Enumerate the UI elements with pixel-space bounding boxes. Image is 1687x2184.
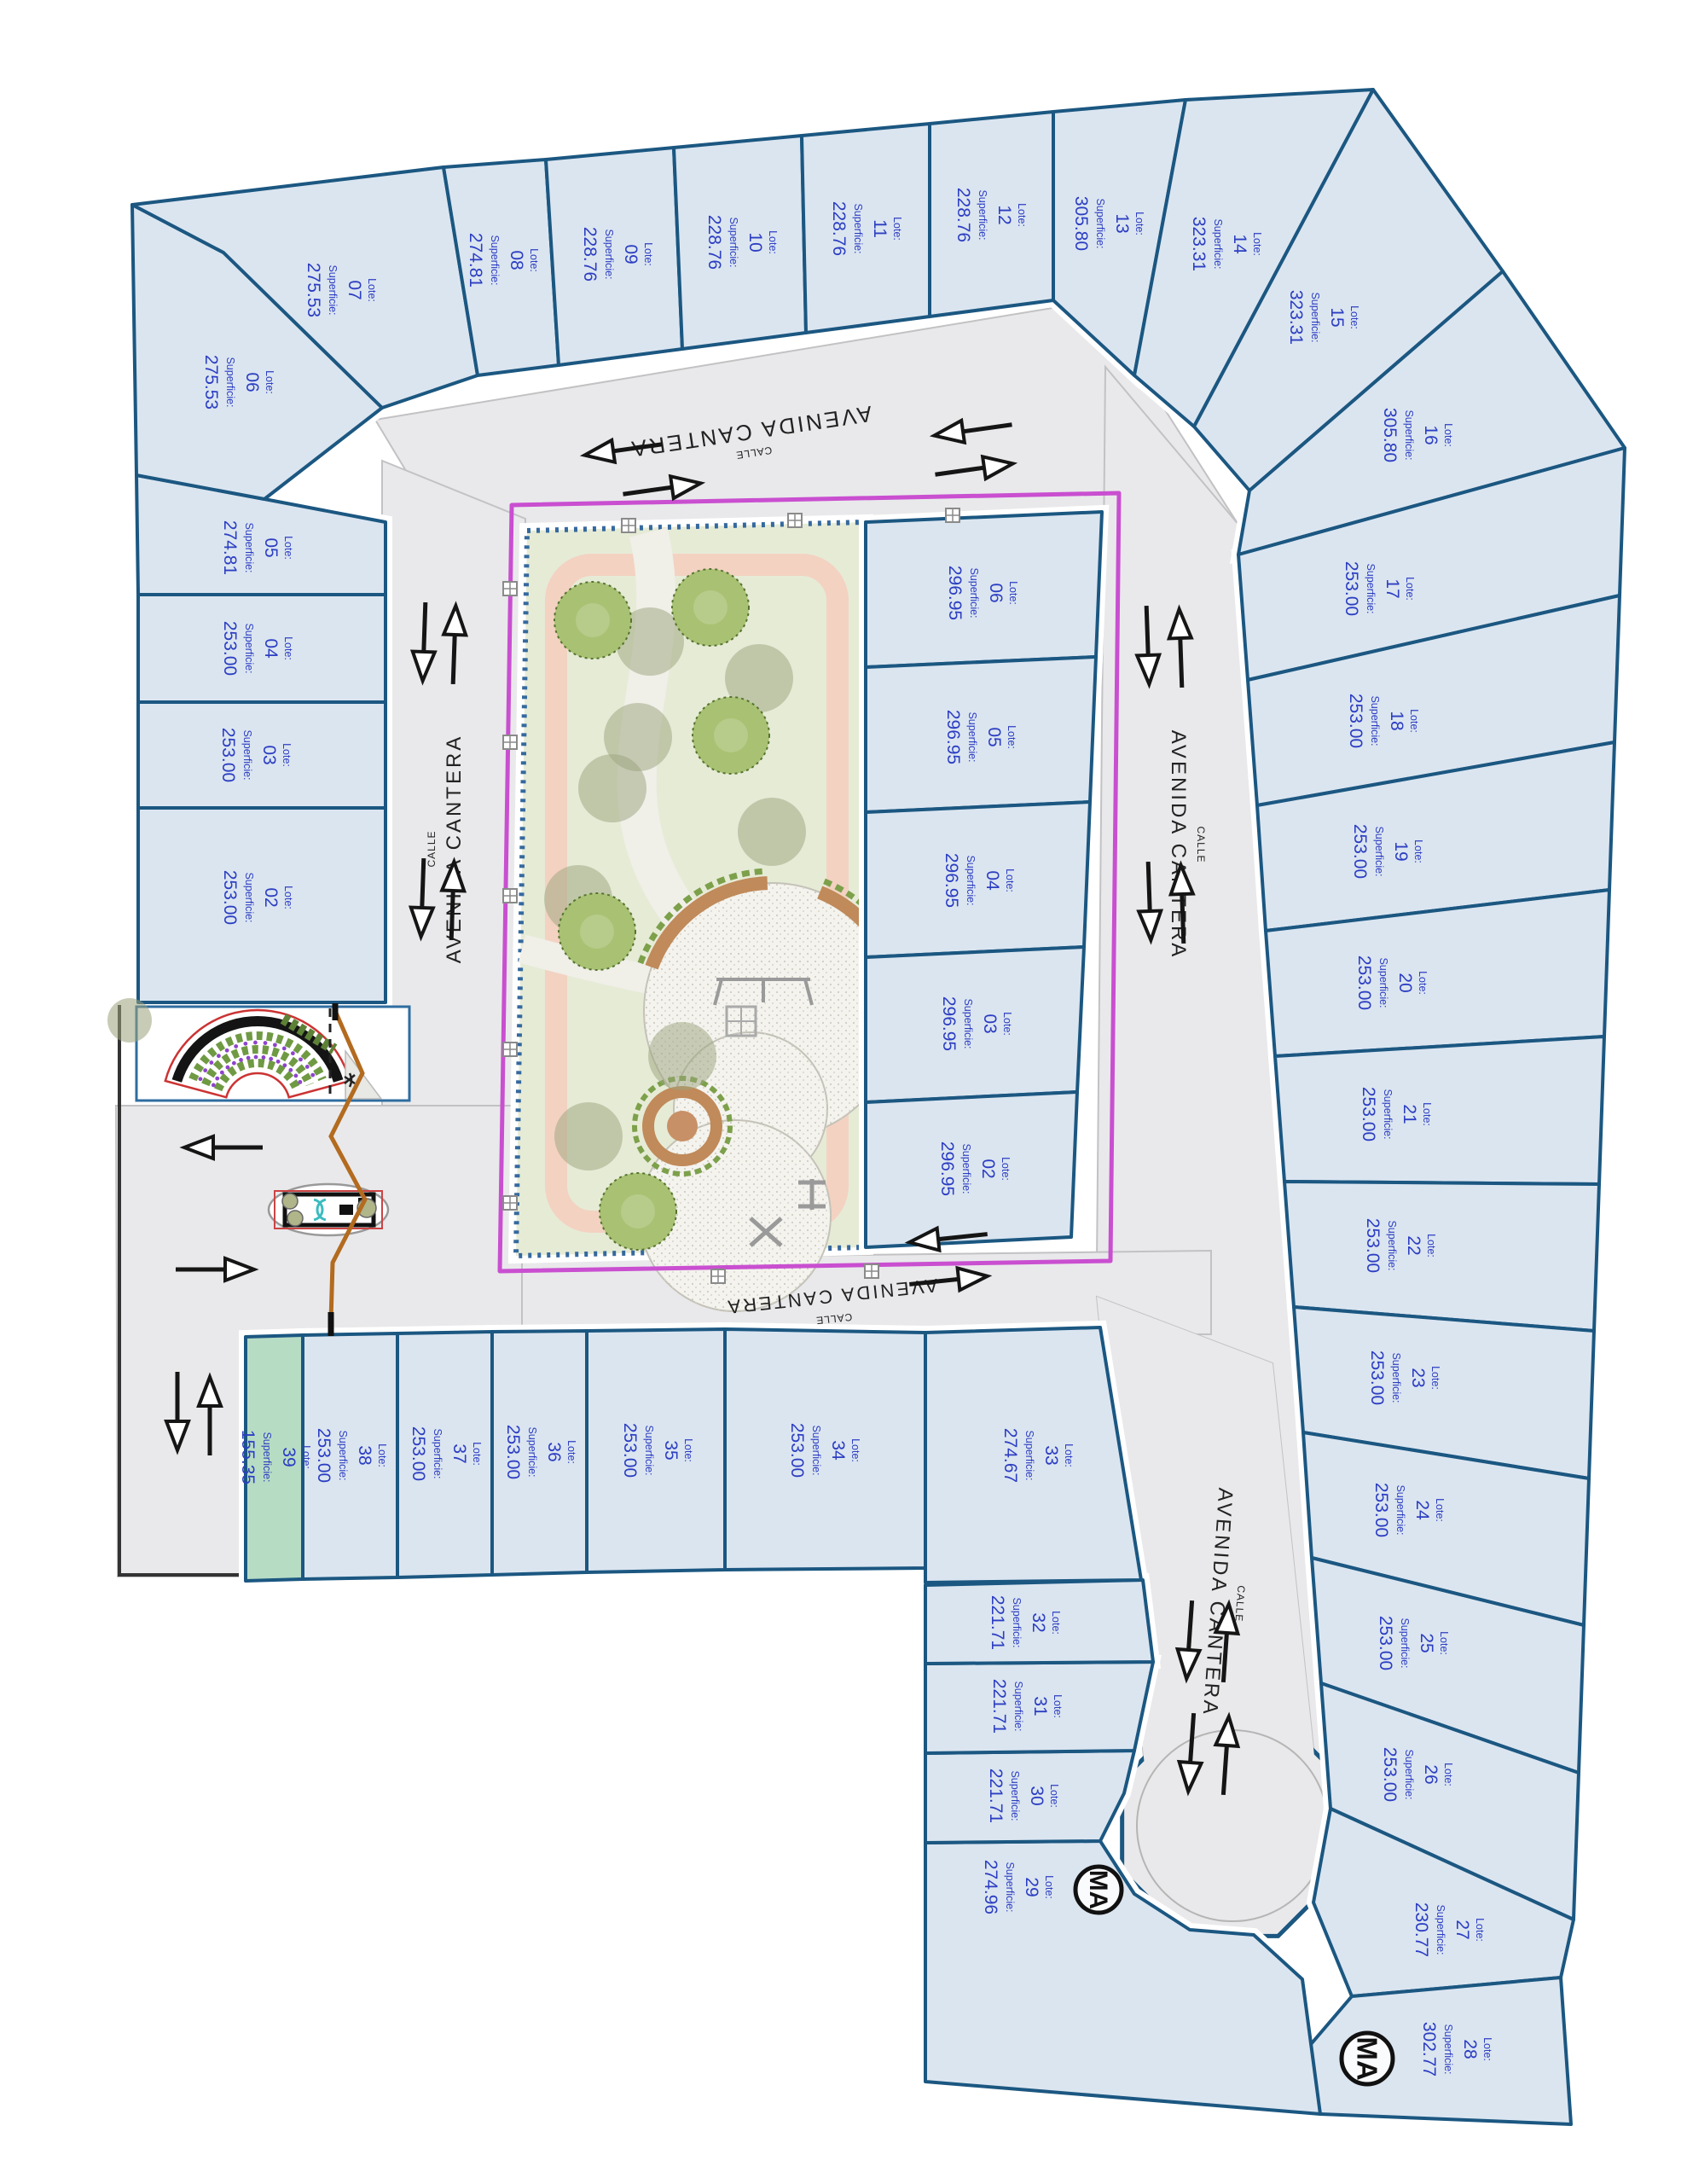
ma-marker: MA — [1342, 2033, 1393, 2084]
park-layer — [516, 522, 912, 1311]
lamp-post-marker — [503, 889, 517, 903]
shrub-icon — [648, 1022, 716, 1090]
shrub-icon — [107, 998, 152, 1043]
lot-i06-shape[interactable] — [866, 512, 1102, 667]
lot-o12-shape[interactable] — [930, 112, 1053, 317]
lot-i03-shape[interactable] — [866, 947, 1084, 1102]
lamp-post-marker — [503, 582, 517, 595]
gatehouse — [269, 1184, 388, 1235]
lamp-post-marker — [788, 514, 802, 527]
svg-text:MA: MA — [1352, 2036, 1383, 2080]
lot-o21-shape[interactable] — [1275, 1037, 1604, 1184]
lamp-post-marker — [503, 1196, 517, 1210]
shrub-icon — [738, 798, 806, 866]
cul-de-sac — [1137, 1730, 1328, 1921]
lamp-post-marker — [865, 1264, 878, 1278]
lot-o34-shape[interactable] — [725, 1329, 925, 1570]
shrub-icon — [578, 754, 646, 822]
lot-i05-shape[interactable] — [866, 657, 1096, 812]
lamp-post-marker — [711, 1269, 725, 1283]
svg-text:MA: MA — [1084, 1870, 1112, 1909]
shrub-icon — [554, 1102, 623, 1170]
lamp-post-marker — [503, 735, 517, 749]
lamp-post-marker — [946, 508, 959, 522]
lot-i04-shape[interactable] — [866, 802, 1090, 957]
lot-o11-shape[interactable] — [802, 124, 930, 333]
site-plan-page: Lote:02Superficie:253.00Lote:03Superfici… — [0, 0, 1687, 2184]
lamp-post-marker — [622, 519, 635, 532]
lamp-post-marker — [503, 1043, 517, 1056]
lot-o35-shape[interactable] — [587, 1329, 725, 1572]
subdivision-plan-canvas: Lote:02Superficie:253.00Lote:03Superfici… — [0, 0, 1687, 2184]
ma-marker: MA — [1075, 1867, 1122, 1913]
